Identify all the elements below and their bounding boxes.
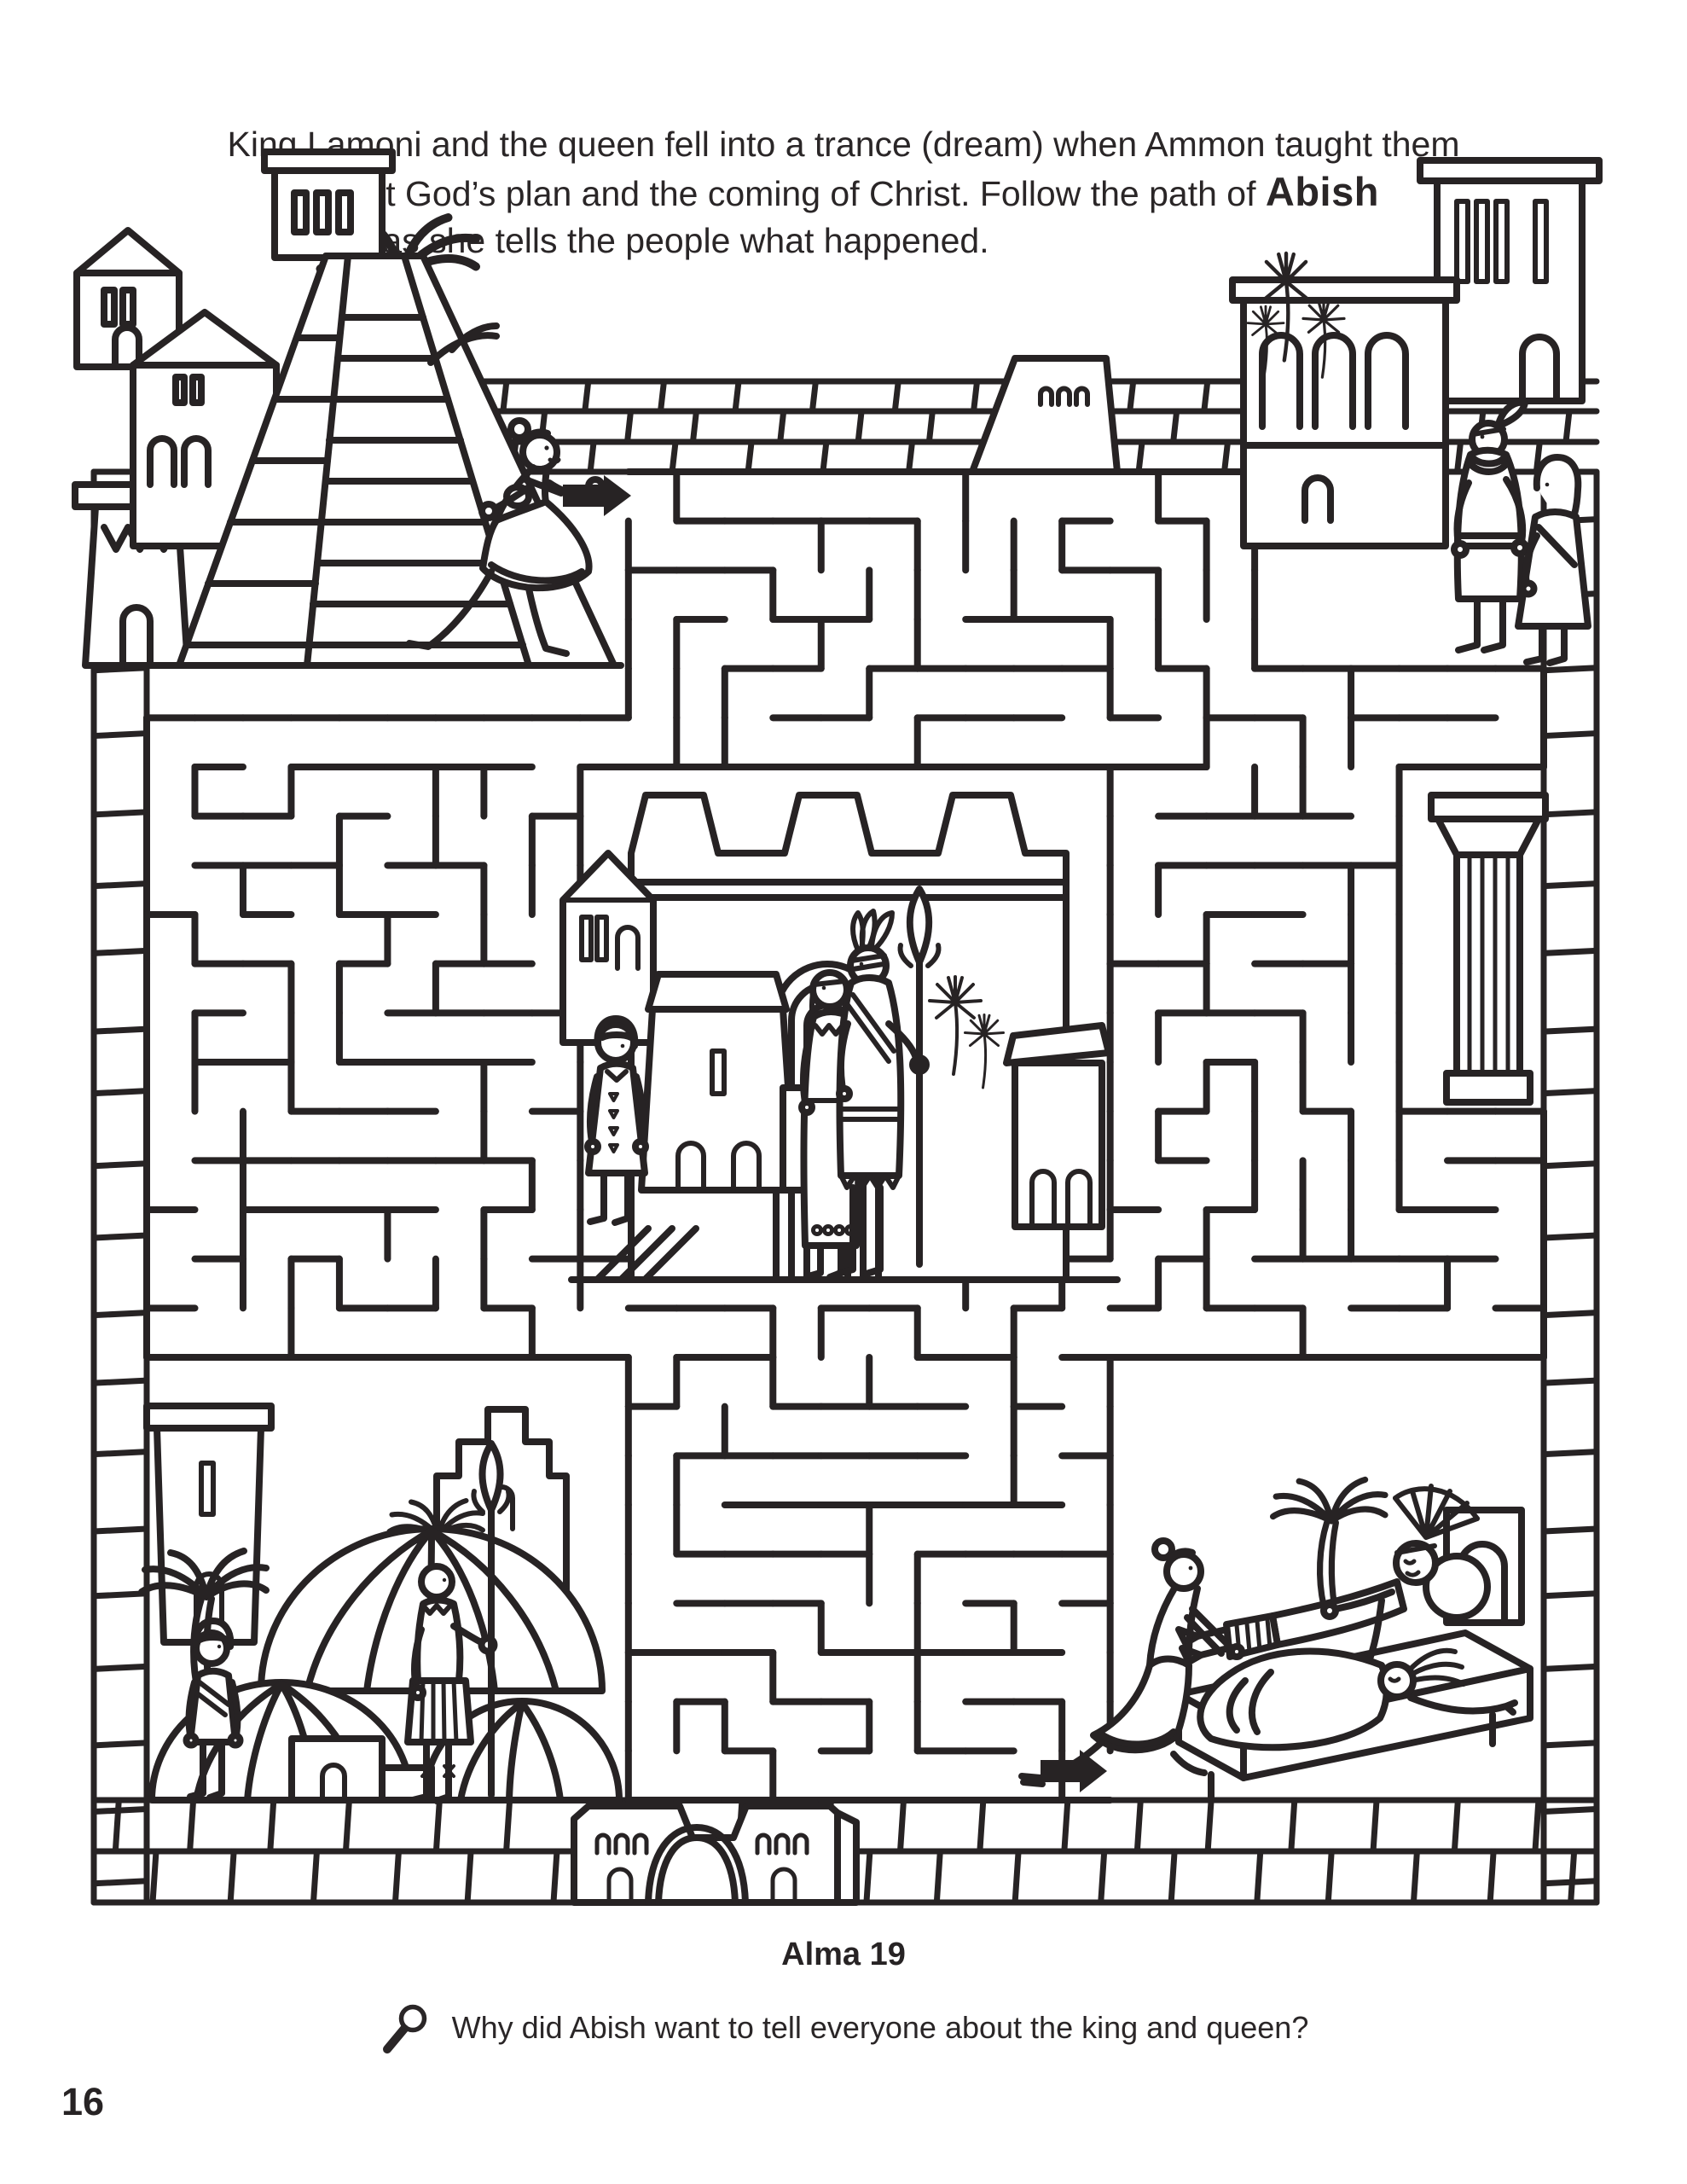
wall-border-right — [1544, 472, 1597, 1902]
king-lamoni-trance-scene — [1022, 795, 1545, 1798]
question-row: Why did Abish want to tell everyone abou… — [0, 2000, 1687, 2056]
magnifying-glass-icon — [379, 2000, 435, 2056]
question-text: Why did Abish want to tell everyone abou… — [452, 2010, 1309, 2046]
maze-svg — [51, 145, 1638, 1937]
maze-illustration — [51, 145, 1638, 1937]
city-gate — [574, 1806, 856, 1902]
page-number: 16 — [61, 2080, 104, 2124]
king-queen-palace-scene — [563, 795, 1117, 1280]
worksheet-page: King Lamoni and the queen fell into a tr… — [0, 0, 1687, 2184]
watchtower-top — [972, 358, 1117, 472]
scripture-reference: Alma 19 — [0, 1937, 1687, 1973]
exit-arrow-icon — [1041, 1750, 1107, 1792]
domed-city-scene — [142, 1406, 619, 1801]
wall-border-left — [94, 472, 147, 1902]
